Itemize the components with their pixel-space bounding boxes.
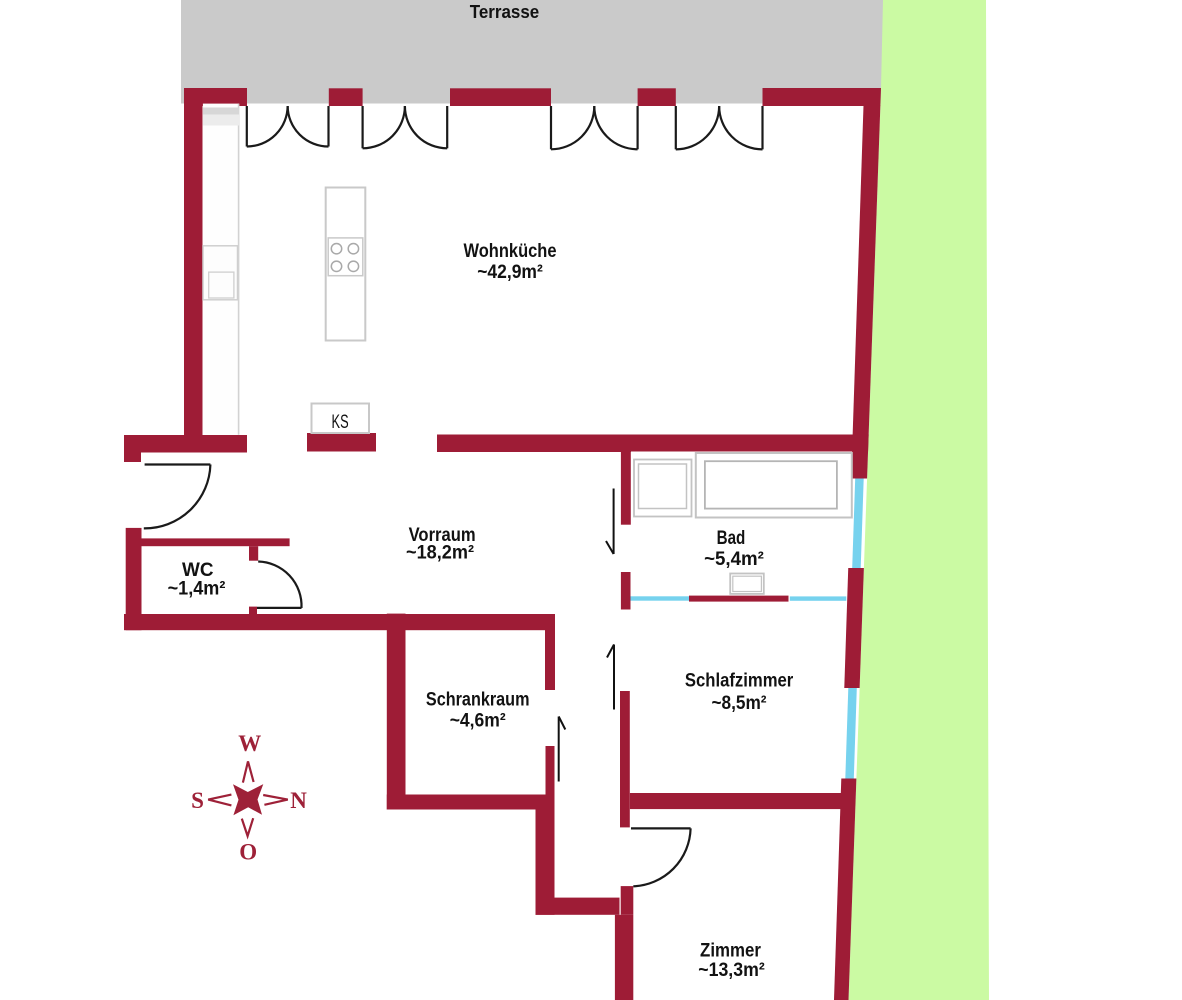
svg-text:S: S <box>191 788 204 813</box>
svg-text:~4,6m²: ~4,6m² <box>450 709 506 731</box>
svg-text:Schrankraum: Schrankraum <box>426 688 530 710</box>
svg-text:Bad: Bad <box>717 527 746 549</box>
svg-text:W: W <box>238 731 261 756</box>
svg-text:~8,5m²: ~8,5m² <box>711 692 767 714</box>
svg-text:~18,2m²: ~18,2m² <box>406 542 474 564</box>
svg-text:Terrasse: Terrasse <box>470 2 540 22</box>
svg-text:KS: KS <box>332 412 349 433</box>
svg-text:Schlafzimmer: Schlafzimmer <box>685 670 794 692</box>
svg-text:O: O <box>239 840 257 865</box>
svg-text:N: N <box>290 788 307 813</box>
svg-text:~42,9m²: ~42,9m² <box>477 261 543 283</box>
svg-text:~13,3m²: ~13,3m² <box>698 959 765 981</box>
svg-text:Wohnküche: Wohnküche <box>464 240 557 262</box>
svg-text:~5,4m²: ~5,4m² <box>704 548 764 570</box>
svg-text:~1,4m²: ~1,4m² <box>168 578 226 600</box>
